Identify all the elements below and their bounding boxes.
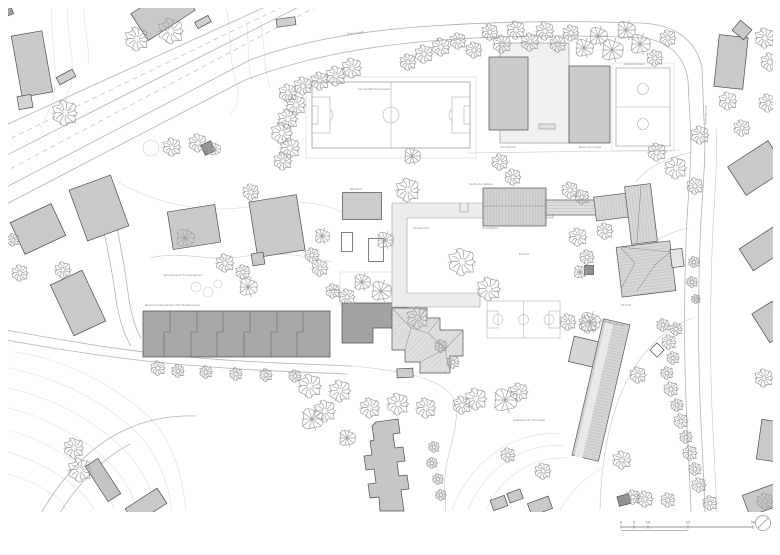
- building-hatch-school-annex-west: [594, 193, 631, 221]
- map-label: Neue Turnhalle: [579, 145, 602, 149]
- building-school-porch: [670, 248, 684, 267]
- map-label: 614.50: [329, 288, 340, 292]
- site-plan: PromenadeSportplatz KunstrasenSporthalle…: [0, 0, 780, 551]
- scale-tick-label: 5: [633, 521, 635, 525]
- building-shed-2: [369, 239, 384, 262]
- scale-tick-label: 25: [686, 521, 691, 525]
- map-label: 616.00: [519, 252, 530, 256]
- map-label: Schulhaus: [482, 226, 498, 230]
- building-outbuilding-n: [397, 368, 413, 378]
- building-workshop: [343, 193, 382, 220]
- map-label: Werkhof: [350, 187, 363, 191]
- map-label: Pausenhof: [413, 226, 429, 230]
- building-kindergarten-row: [143, 311, 330, 357]
- building-trafo-2: [585, 266, 594, 275]
- building-sports-hall-1: [489, 57, 528, 130]
- map-label: Schulstrasse: [704, 106, 708, 125]
- building-hatch-cross-building: [483, 188, 546, 226]
- building-building-e: [167, 204, 220, 249]
- building-hall-bench: [539, 124, 555, 129]
- building-shed-1: [342, 233, 353, 252]
- map-label: Sportplatz Kunstrasen: [358, 87, 391, 91]
- map-label: Allwetterplatz: [624, 62, 645, 66]
- building-ne-house: [714, 35, 748, 90]
- building-building-f: [249, 195, 305, 258]
- map-label: Spielbereich Kindergarten: [164, 273, 203, 277]
- north-arrow-icon: [756, 516, 771, 531]
- map-label: Sporthalle: [500, 145, 515, 149]
- site-plan-page: PromenadeSportplatz KunstrasenSporthalle…: [0, 0, 780, 551]
- map-label: 615.50: [621, 303, 632, 307]
- scale-tick-label: 10: [646, 521, 651, 525]
- map-label: Neuer Kindergarten mit Musikschule: [145, 303, 200, 307]
- building-building-f-stub: [251, 252, 265, 266]
- map-label: bestehende Turnhalle: [513, 418, 545, 422]
- map-label: Verbindungsbau: [469, 182, 493, 186]
- building-building-a-annex: [17, 94, 33, 109]
- building-sports-hall-2: [569, 66, 610, 143]
